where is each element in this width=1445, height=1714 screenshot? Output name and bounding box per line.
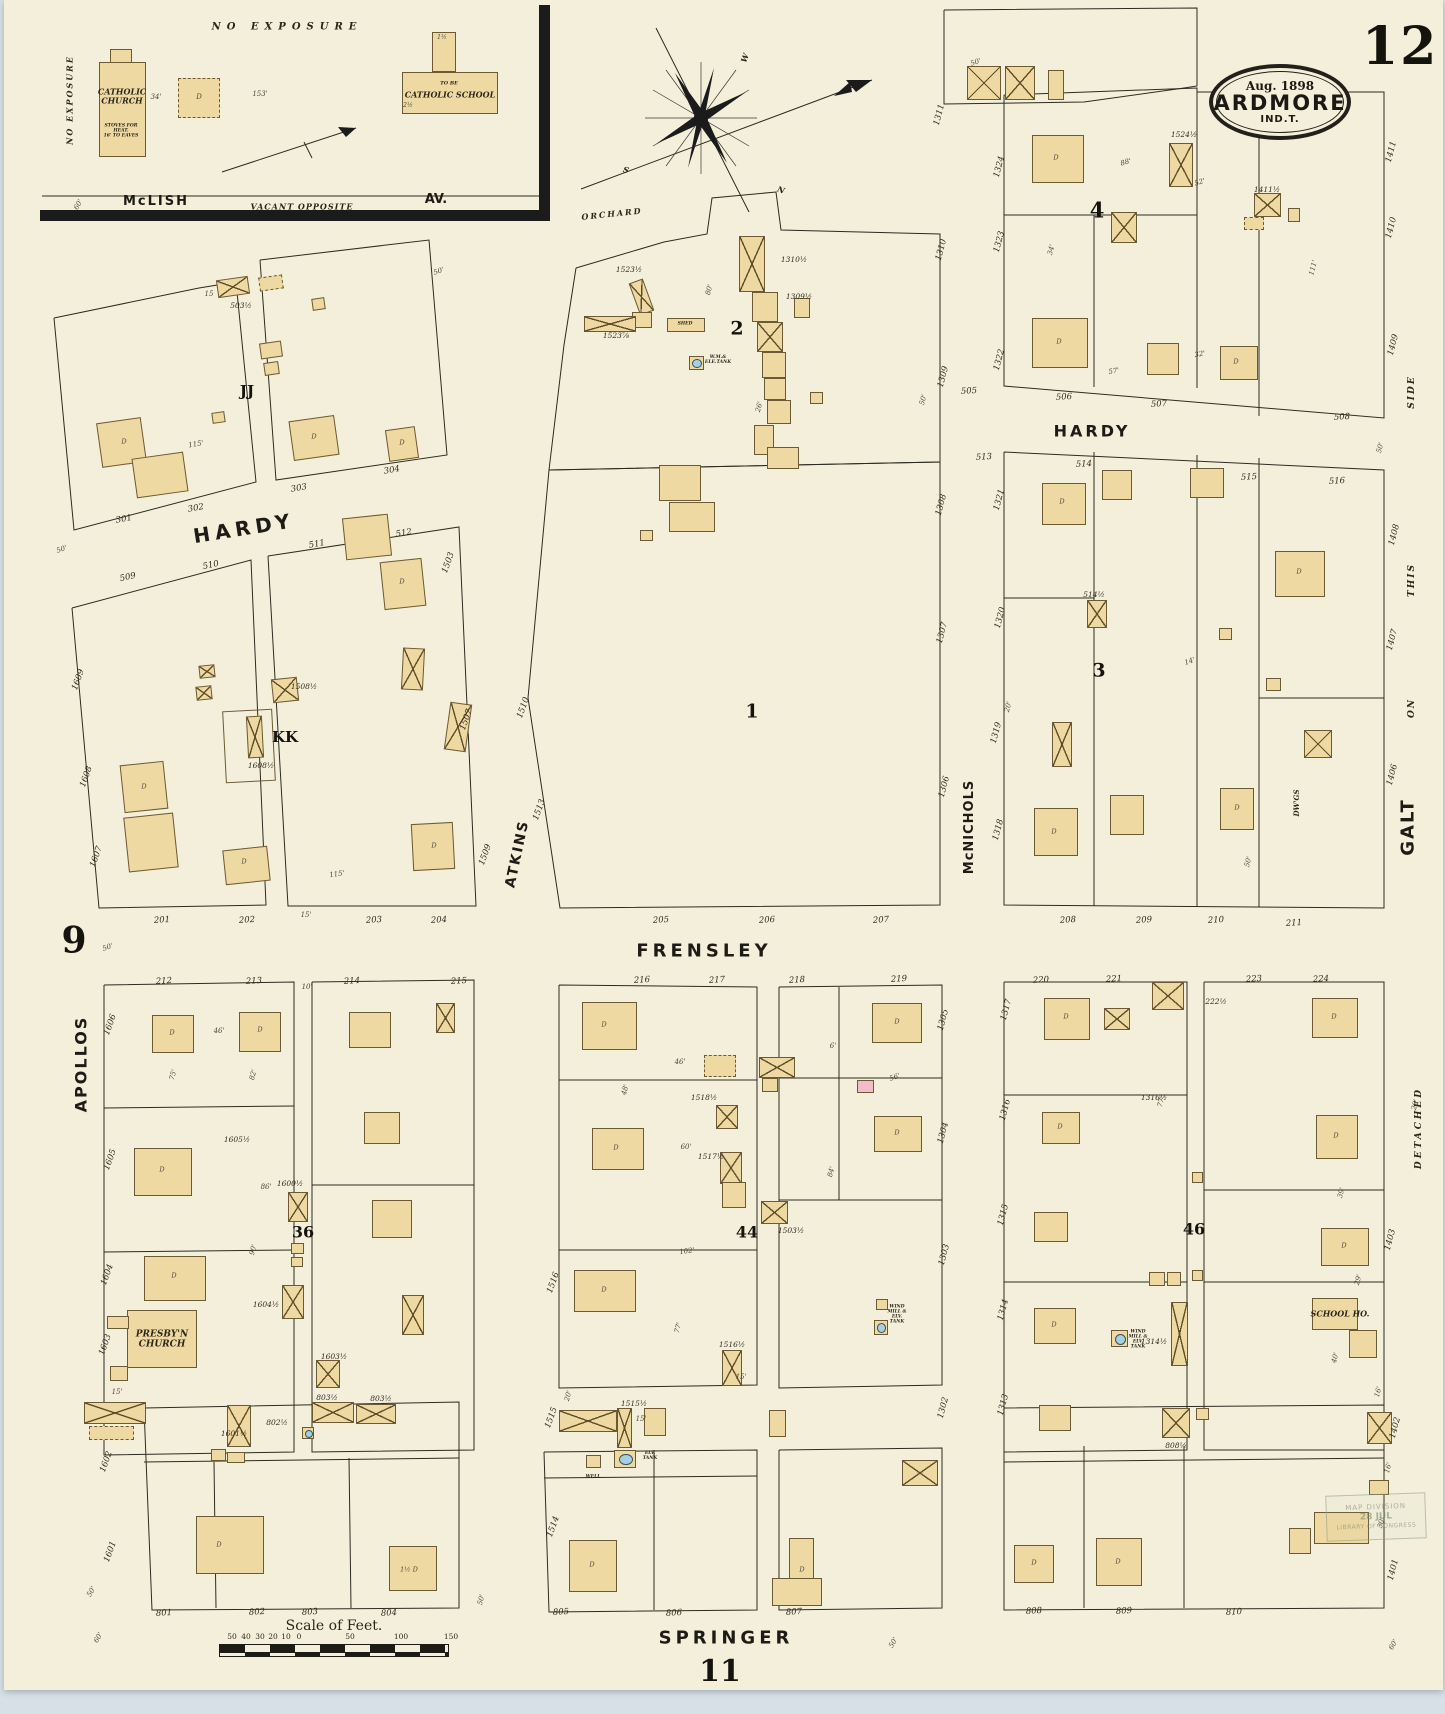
dim-label: 60' — [73, 198, 85, 211]
lot-number: 805 — [553, 1608, 570, 1618]
compass-letter: W — [739, 52, 750, 63]
block-number: KK — [272, 729, 298, 745]
lot-number: 213 — [246, 977, 263, 987]
lot-number: 809 — [1116, 1607, 1133, 1617]
lot-number: 806 — [666, 1609, 683, 1619]
dim-label: 80' — [705, 284, 715, 296]
scale-tick: 0 — [297, 1632, 302, 1641]
scale-bar-strip-2 — [219, 1653, 449, 1657]
lot-number: 1310½ — [781, 256, 807, 264]
block-number: 44 — [736, 1223, 758, 1240]
dim-label: 32' — [1194, 350, 1206, 359]
lot-number: 1308 — [935, 493, 949, 516]
dim-label: D — [121, 438, 126, 445]
lot-number: 803½ — [316, 1394, 338, 1402]
scale-tick: 150 — [444, 1632, 458, 1641]
block-number: 2 — [730, 319, 743, 340]
lot-number: 1510 — [516, 696, 532, 719]
lot-number: 1307 — [936, 621, 950, 644]
title-badge-inner: Aug. 1898 ARDMORE IND.T. — [1216, 71, 1344, 133]
scale-tick: 30 — [255, 1632, 265, 1641]
dim-label: D — [613, 1144, 618, 1151]
dim-label: 50' — [477, 1594, 487, 1606]
lot-number: 1605 — [103, 1148, 119, 1171]
labels-layer: NO EXPOSURENO EXPOSURECATHOLICCHURCHSTOV… — [4, 0, 1445, 1714]
map-label: TO BE — [440, 81, 458, 86]
map-label: STOVES FORHEAT.16' TO EAVES — [104, 125, 139, 140]
lot-number: 1516½ — [719, 1341, 745, 1349]
lot-number: 1507 — [459, 708, 475, 731]
dim-label: 82' — [249, 1069, 259, 1081]
dim-label: 111' — [1308, 260, 1319, 277]
street-label: SPRINGER — [659, 1628, 794, 1647]
block-number: 9 — [61, 922, 86, 961]
dim-label: 16' — [1374, 1386, 1384, 1398]
map-territory: IND.T. — [1260, 114, 1299, 125]
loc-stamp: MAP DIVISION 28 JUL LIBRARY OF CONGRESS — [1325, 1492, 1427, 1541]
lot-number: 1306 — [938, 775, 952, 798]
lot-number: 507 — [1151, 400, 1168, 410]
lot-number: 1608 — [79, 765, 95, 788]
map-label: VACANT OPPOSITE — [251, 203, 354, 212]
dim-label: D — [1059, 498, 1064, 505]
lot-number: 224 — [1313, 975, 1330, 985]
lot-number: 1305 — [937, 1008, 951, 1031]
lot-number: 505 — [961, 387, 978, 397]
lot-number: 204 — [431, 916, 448, 926]
lot-number: 1509 — [478, 843, 494, 866]
dim-label: 50' — [433, 267, 446, 278]
dim-label: 90' — [249, 1244, 259, 1256]
lot-number: 1402 — [1389, 1416, 1403, 1439]
lot-number: 1323 — [993, 230, 1007, 253]
lot-number: 1503½ — [778, 1227, 804, 1235]
dim-label: D — [216, 1541, 221, 1548]
lot-number: 1601½ — [221, 1430, 247, 1438]
lot-number: 1406 — [1386, 763, 1400, 786]
dim-label: 153' — [252, 91, 267, 99]
lot-number: 1321 — [993, 488, 1007, 511]
lot-number: 206 — [759, 916, 776, 926]
lot-number: 803 — [302, 1608, 319, 1618]
scale-tick: 50 — [227, 1632, 237, 1641]
lot-number: 302 — [187, 503, 205, 515]
dim-label: 10' — [302, 984, 313, 992]
dim-label: 50' — [86, 1585, 98, 1598]
dim-label: D — [141, 783, 146, 790]
lot-number: 1315 — [997, 1203, 1011, 1226]
map-label: NO EXPOSURE — [66, 55, 75, 145]
lot-number: 1319 — [990, 721, 1004, 744]
lot-number: 1317 — [1000, 998, 1014, 1021]
street-label: AV. — [425, 193, 448, 207]
street-label: GALT — [1398, 798, 1417, 855]
dim-label: D — [1051, 828, 1056, 835]
scale-tick: 50 — [345, 1632, 355, 1641]
lot-number: 1600½ — [277, 1180, 303, 1188]
map-label: CATHOLIC SCHOOL — [405, 91, 495, 100]
lot-number: 1601 — [103, 1540, 119, 1563]
lot-number: 1604 — [100, 1263, 116, 1286]
street-label: APOLLOS — [72, 1016, 89, 1113]
dim-label: D — [196, 94, 202, 102]
scale-tick: 100 — [394, 1632, 408, 1641]
dim-label: 50' — [888, 1636, 900, 1649]
lot-number: 1609 — [71, 668, 87, 691]
lot-number: 1606 — [103, 1013, 119, 1036]
lot-number: 1503 — [441, 551, 457, 574]
lot-number: 511 — [308, 539, 326, 551]
map-city: ARDMORE — [1213, 93, 1346, 114]
dim-label: 1½ — [437, 35, 447, 41]
dim-label: 20' — [564, 1390, 574, 1402]
map-label: CATHOLICCHURCH — [98, 87, 146, 104]
map-label: SCHOOL HO. — [1311, 1310, 1370, 1319]
dim-label: 60' — [1388, 1638, 1400, 1651]
dim-label: D — [241, 858, 246, 865]
dim-label: 50' — [1244, 856, 1254, 868]
lot-number: 801 — [156, 1609, 173, 1619]
dim-label: D — [894, 1129, 899, 1136]
lot-number: 1608½ — [248, 762, 274, 770]
lot-number: 203 — [366, 916, 383, 926]
lot-number: 214 — [344, 977, 361, 987]
map-label: THIS — [1408, 563, 1418, 597]
dim-label: D — [1057, 1123, 1062, 1130]
lot-number: 513 — [976, 453, 993, 463]
dim-label: 77' — [674, 1322, 684, 1334]
lot-number: 1517½ — [698, 1153, 724, 1161]
lot-number: 1508½ — [291, 683, 317, 691]
lot-number: 1523⅞ — [603, 332, 629, 340]
dim-label: 48' — [621, 1084, 631, 1096]
lot-number: 208 — [1060, 916, 1077, 926]
scale-bar: Scale of Feet. 5040302010050100150 — [209, 1618, 459, 1634]
lot-number: 217 — [709, 976, 726, 986]
lot-number: 304 — [383, 465, 401, 477]
lot-number: 1314½ — [1141, 1338, 1167, 1346]
lot-number: 1408 — [1388, 523, 1402, 546]
lot-number: 1516 — [546, 1271, 562, 1294]
dim-label: 46' — [675, 1059, 686, 1067]
dim-label: 50' — [56, 545, 69, 556]
lot-number: 807 — [786, 1608, 803, 1618]
sheet-number: 12 — [1362, 16, 1434, 77]
dim-label: D — [799, 1566, 804, 1573]
dim-label: D — [399, 439, 404, 446]
lot-number: 1310 — [935, 238, 949, 261]
dim-label: 40' — [1331, 1352, 1341, 1364]
lot-number: 1322 — [993, 348, 1007, 371]
dim-label: 6' — [830, 1043, 836, 1051]
lot-number: 209 — [1136, 916, 1153, 926]
lot-number: 301 — [115, 514, 133, 526]
lot-number: 1316 — [999, 1098, 1013, 1121]
map-label: ORCHARD — [581, 207, 643, 222]
dim-label: D — [601, 1286, 606, 1293]
dim-label: 1½ D — [400, 1566, 418, 1573]
dim-label: 15' — [301, 912, 312, 920]
lot-number: 514½ — [1083, 591, 1105, 599]
dim-label: D — [1051, 1321, 1056, 1328]
lot-number: 1515½ — [621, 1400, 647, 1408]
lot-number: 1605½ — [224, 1136, 250, 1144]
dim-label: 115' — [329, 870, 345, 880]
dim-label: 16' — [1384, 1462, 1394, 1474]
lot-number: 1607 — [89, 845, 105, 868]
map-sheet: NO EXPOSURENO EXPOSURECATHOLICCHURCHSTOV… — [4, 0, 1443, 1690]
dim-label: 15' — [736, 1374, 747, 1382]
dim-label: 15' — [636, 1416, 647, 1424]
lot-number: 221 — [1106, 975, 1123, 985]
dim-label: 39' — [1337, 1187, 1347, 1199]
dim-label: 75' — [169, 1069, 179, 1081]
lot-number: 503½ — [230, 302, 252, 310]
lot-number: 1409 — [1387, 333, 1401, 356]
lot-number: 808 — [1026, 1607, 1043, 1617]
dim-label: D — [1031, 1559, 1036, 1566]
dim-label: D — [1333, 1132, 1338, 1139]
lot-number: 220 — [1033, 976, 1050, 986]
lot-number: 205 — [653, 916, 670, 926]
dim-label: D — [1056, 338, 1061, 345]
dim-label: D — [257, 1026, 262, 1033]
lot-number: 802½ — [266, 1419, 288, 1427]
scale-bar-strip — [219, 1644, 449, 1653]
block-number: 11 — [699, 1656, 741, 1688]
block-number: 36 — [292, 1223, 314, 1240]
dim-label: 20' — [1004, 701, 1014, 713]
lot-number: 201 — [154, 916, 171, 926]
lot-number: 516 — [1329, 477, 1346, 487]
lot-number: 1407 — [1386, 628, 1400, 651]
lot-number: 508 — [1334, 413, 1351, 423]
lot-number: 1524½ — [1171, 131, 1197, 139]
street-label: McNICHOLS — [963, 780, 977, 874]
lot-number: 802 — [249, 1608, 266, 1618]
lot-number: 1403 — [1384, 1228, 1398, 1251]
lot-number: 218 — [789, 976, 806, 986]
street-label: HARDY — [1054, 422, 1131, 439]
lot-number: 1518½ — [691, 1094, 717, 1102]
dim-label: D — [1234, 804, 1239, 811]
lot-number: 207 — [873, 916, 890, 926]
lot-number: 1318 — [992, 818, 1006, 841]
map-label: ELV.TANK — [643, 1452, 658, 1462]
map-label: WELL — [586, 1476, 601, 1481]
compass-letter: N — [776, 185, 786, 196]
stamp-line3: LIBRARY OF CONGRESS — [1336, 1522, 1416, 1532]
lot-number: 1309½ — [786, 293, 812, 301]
lot-number: 1314 — [997, 1298, 1011, 1321]
dim-label: 2½ — [403, 103, 413, 109]
lot-number: 515 — [1241, 473, 1258, 483]
lot-number: 1309 — [937, 365, 951, 388]
dim-label: D — [431, 842, 436, 849]
dim-label: D — [1296, 568, 1301, 575]
lot-number: 216 — [634, 976, 651, 986]
map-label: SHED — [678, 323, 693, 328]
dim-label: 84' — [827, 1166, 837, 1178]
dim-label: 26' — [755, 401, 765, 413]
lot-number: 219 — [891, 975, 908, 985]
lot-number: 810 — [1226, 1608, 1243, 1618]
dim-label: D — [1341, 1242, 1346, 1249]
dim-label: 60' — [93, 1631, 105, 1644]
block-number: 1 — [745, 702, 758, 723]
lot-number: 1513 — [532, 798, 548, 821]
lot-number: 212 — [156, 977, 173, 987]
dim-label: D — [169, 1029, 174, 1036]
dim-label: 50' — [102, 943, 115, 954]
lot-number: 210 — [1208, 916, 1225, 926]
lot-number: 222½ — [1205, 998, 1227, 1006]
map-label: WINDMILL &ELV.TANK — [887, 1305, 906, 1324]
lot-number: 202 — [239, 916, 256, 926]
dim-label: D — [1233, 358, 1238, 365]
lot-number: 1411½ — [1254, 186, 1280, 194]
street-label: FRENSLEY — [636, 941, 771, 960]
dim-label: 50' — [1376, 442, 1386, 454]
lot-number: 1523½ — [616, 266, 642, 274]
lot-number: 215 — [451, 977, 468, 987]
lot-number: 1514 — [546, 1515, 562, 1538]
dim-label: D — [589, 1561, 594, 1568]
lot-number: 1411 — [1385, 140, 1399, 163]
dim-label: 34' — [1047, 244, 1057, 256]
dim-label: 57' — [1108, 367, 1120, 376]
street-label: HARDY — [192, 510, 296, 547]
block-number: JJ — [240, 383, 254, 399]
dim-label: D — [159, 1166, 164, 1173]
dim-label: D — [399, 578, 404, 585]
dim-label: 86' — [261, 1184, 272, 1192]
title-badge: Aug. 1898 ARDMORE IND.T. — [1209, 64, 1351, 140]
lot-number: 514 — [1076, 460, 1093, 470]
lot-number: 1324 — [993, 155, 1007, 178]
dim-label: 102' — [679, 1247, 695, 1257]
lot-number: 211 — [1286, 919, 1303, 929]
dim-label: D — [1115, 1558, 1120, 1565]
lot-number: 1401 — [1387, 1558, 1401, 1581]
dim-label: D — [894, 1018, 899, 1025]
dim-label: 15 — [205, 291, 214, 299]
lot-number: 808½ — [1165, 1442, 1187, 1450]
dim-label: D — [1063, 1013, 1068, 1020]
dim-label: 14' — [1184, 657, 1197, 668]
dim-label: 88' — [1120, 158, 1132, 168]
dim-label: 29' — [1354, 1274, 1364, 1286]
dim-label: D — [311, 433, 316, 440]
lot-number: 1320 — [994, 606, 1008, 629]
lot-number: 303 — [290, 483, 308, 495]
map-label: PRESBY'NCHURCH — [136, 1330, 188, 1349]
dim-label: 77' — [1157, 1096, 1167, 1108]
lot-number: 1313 — [997, 1393, 1011, 1416]
lot-number: 506 — [1056, 393, 1073, 403]
lot-number: 1303 — [938, 1243, 952, 1266]
dim-label: 50' — [919, 394, 929, 406]
lot-number: 1602 — [99, 1450, 115, 1473]
lot-number: 512 — [395, 528, 413, 540]
dim-label: 56' — [889, 1073, 902, 1084]
lot-number: 1604½ — [253, 1301, 279, 1309]
lot-number: 1603 — [98, 1333, 114, 1356]
map-label: ON — [1408, 698, 1418, 718]
block-number: 3 — [1092, 661, 1105, 682]
dim-label: 52' — [1194, 178, 1206, 188]
dim-label: 15' — [112, 1389, 123, 1397]
block-number: 46 — [1183, 1220, 1205, 1237]
block-number: 4 — [1090, 200, 1105, 223]
compass-letter: S — [622, 165, 630, 175]
dim-label: D — [1053, 154, 1058, 161]
dim-label: D — [601, 1021, 606, 1028]
scale-tick: 10 — [281, 1632, 291, 1641]
street-label: ATKINS — [503, 819, 532, 890]
lot-number: 1302 — [937, 1396, 951, 1419]
dim-label: 50' — [970, 58, 983, 69]
dim-label: D — [171, 1272, 176, 1279]
dim-label: 60' — [681, 1144, 692, 1152]
scale-tick: 40 — [241, 1632, 251, 1641]
lot-number: 803½ — [370, 1395, 392, 1403]
map-label: SIDE — [1408, 375, 1418, 408]
dim-label: 46' — [214, 1028, 225, 1036]
map-label: NO EXPOSURE — [212, 23, 363, 34]
lot-number: 1311 — [933, 103, 947, 126]
dim-label: 34' — [151, 94, 162, 102]
lot-number: 509 — [119, 572, 137, 584]
lot-number: 1410 — [1385, 216, 1399, 239]
dim-label: 115' — [188, 440, 204, 450]
dim-label: D — [1331, 1013, 1336, 1020]
lot-number: 223 — [1246, 975, 1263, 985]
lot-number: 510 — [202, 560, 220, 572]
street-label: McLISH — [123, 195, 189, 209]
lot-number: 1515 — [544, 1406, 560, 1429]
lot-number: 1603½ — [321, 1353, 347, 1361]
scale-tick: 20 — [268, 1632, 278, 1641]
map-label: DW'GS — [1293, 789, 1301, 816]
lot-number: 1304 — [937, 1121, 951, 1144]
map-label: W.M.&ELE.TANK — [705, 356, 731, 366]
